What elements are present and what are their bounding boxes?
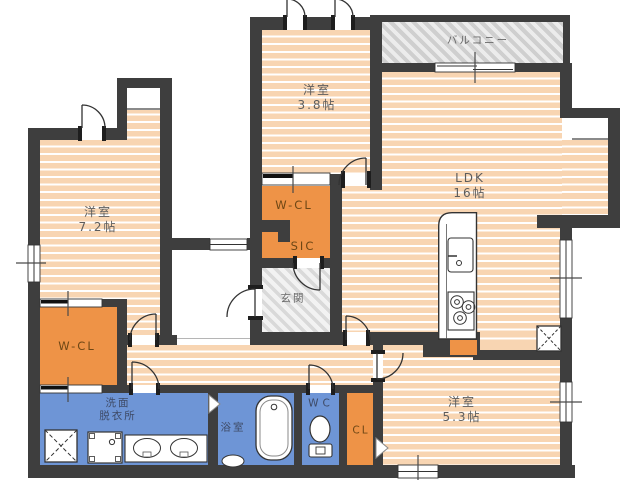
bay-window-right [572, 118, 608, 140]
room-name: 洋室 [303, 83, 331, 97]
wall-segment [104, 128, 117, 140]
wall-segment [560, 422, 572, 478]
wall-segment [372, 15, 570, 22]
wall-segment [373, 345, 383, 352]
ldk-floor [382, 72, 562, 332]
wall-segment [262, 258, 296, 268]
room-area: 3.8帖 [297, 98, 336, 112]
wall-segment [102, 385, 131, 393]
senmen-label: 洗面 脱衣所 [99, 397, 137, 423]
wall-segment [28, 282, 40, 478]
wall-segment [208, 393, 218, 465]
wall-segment [333, 385, 373, 393]
wall-segment [330, 174, 343, 186]
wall-segment [560, 108, 620, 118]
room-name: 脱衣所 [99, 410, 137, 422]
bath-label: 浴室 [221, 421, 246, 434]
cl-label: CL [352, 424, 369, 437]
bedroom-72-floor-ext [127, 108, 160, 140]
genkan-label: 玄関 [281, 292, 306, 305]
wall-segment [250, 30, 262, 288]
wall-segment [368, 174, 382, 186]
bedroom-72-floor [40, 140, 160, 335]
wcl-top-label: W-CL [275, 198, 313, 212]
wall-segment [473, 350, 567, 360]
bedroom-72-label: 洋室 7.2帖 [78, 205, 117, 235]
wall-segment [278, 220, 290, 242]
wall-segment [294, 393, 302, 465]
wall-segment [157, 335, 177, 345]
wall-segment [158, 385, 308, 393]
window-casement-38b [335, 0, 353, 17]
hallway-floor [127, 345, 373, 385]
sic-label: SIC [291, 239, 316, 253]
room-area: 5.3帖 [442, 410, 481, 424]
wall-segment [373, 380, 383, 465]
bay-window-left [127, 88, 160, 110]
room-name: 洋室 [84, 205, 112, 219]
ldk-label: LDK 16帖 [453, 171, 486, 201]
wall-segment [370, 15, 382, 190]
wall-segment [563, 22, 570, 63]
wall-segment [28, 128, 40, 245]
room-name: 洗面 [106, 397, 131, 409]
wall-segment [608, 108, 620, 228]
balcony-label: バルコニー [447, 34, 509, 47]
wall-segment [305, 17, 333, 30]
wall-segment [370, 63, 435, 72]
wall-segment [438, 465, 575, 478]
bedroom-38-label: 洋室 3.8帖 [297, 83, 336, 113]
wall-segment [368, 332, 430, 345]
wc-label: WC [308, 397, 334, 410]
ldk-floor-left [342, 186, 382, 332]
wall-segment [28, 465, 398, 478]
bedroom-53-label: 洋室 5.3帖 [442, 395, 481, 425]
wall-segment [160, 238, 210, 250]
wall-segment [322, 258, 342, 268]
wall-segment [250, 332, 345, 345]
window-casement-38a [287, 0, 305, 17]
wall-segment [339, 393, 347, 465]
kitchen-cabinet [450, 340, 477, 355]
room-name: LDK [455, 171, 485, 185]
floor-plan: バルコニー 洋室 3.8帖 LDK 16帖 洋室 7.2帖 洋室 5.3帖 W-… [0, 0, 640, 480]
room-area: 7.2帖 [78, 220, 117, 234]
window-casement-72 [82, 105, 105, 128]
wcl-left-label: W-CL [58, 339, 96, 353]
room-area: 16帖 [453, 186, 486, 200]
wall-segment [515, 63, 570, 72]
wall-segment [160, 78, 172, 345]
room-name: 洋室 [448, 395, 476, 409]
wall-segment [117, 299, 127, 393]
hall-floor [172, 250, 250, 345]
ldk-floor-right [562, 140, 608, 225]
wall-segment [250, 17, 285, 30]
hall-boundary-line [172, 338, 250, 339]
